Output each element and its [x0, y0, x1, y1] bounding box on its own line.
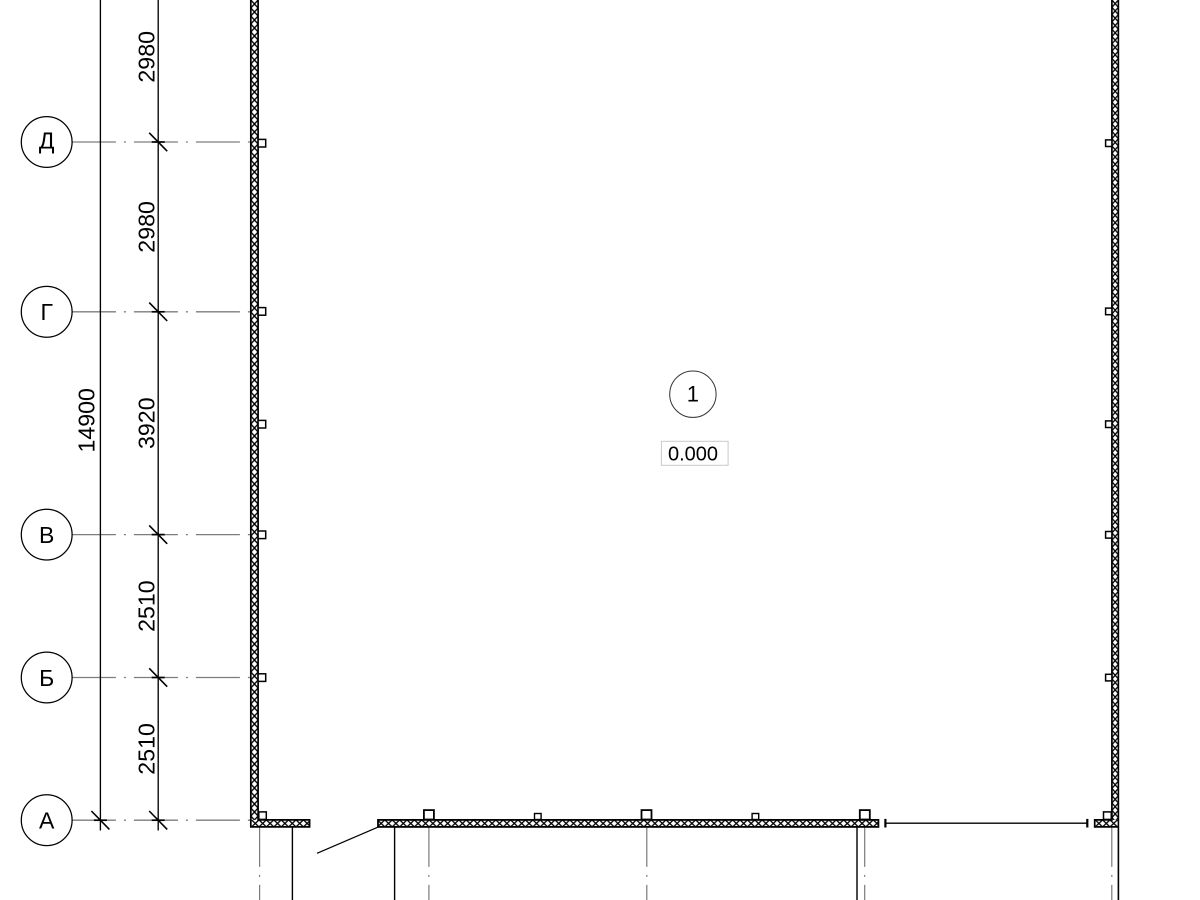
svg-text:2510: 2510: [134, 580, 160, 632]
svg-text:2510: 2510: [134, 723, 160, 775]
svg-text:3920: 3920: [134, 397, 160, 449]
svg-text:Г: Г: [40, 299, 53, 325]
svg-text:1: 1: [687, 382, 699, 407]
svg-text:Б: Б: [39, 665, 54, 691]
svg-text:А: А: [39, 808, 55, 834]
svg-text:2980: 2980: [134, 31, 160, 83]
svg-text:0.000: 0.000: [668, 444, 718, 466]
svg-text:Д: Д: [39, 128, 55, 154]
svg-text:2980: 2980: [134, 201, 160, 253]
svg-text:В: В: [39, 522, 54, 548]
svg-text:14900: 14900: [74, 388, 100, 452]
